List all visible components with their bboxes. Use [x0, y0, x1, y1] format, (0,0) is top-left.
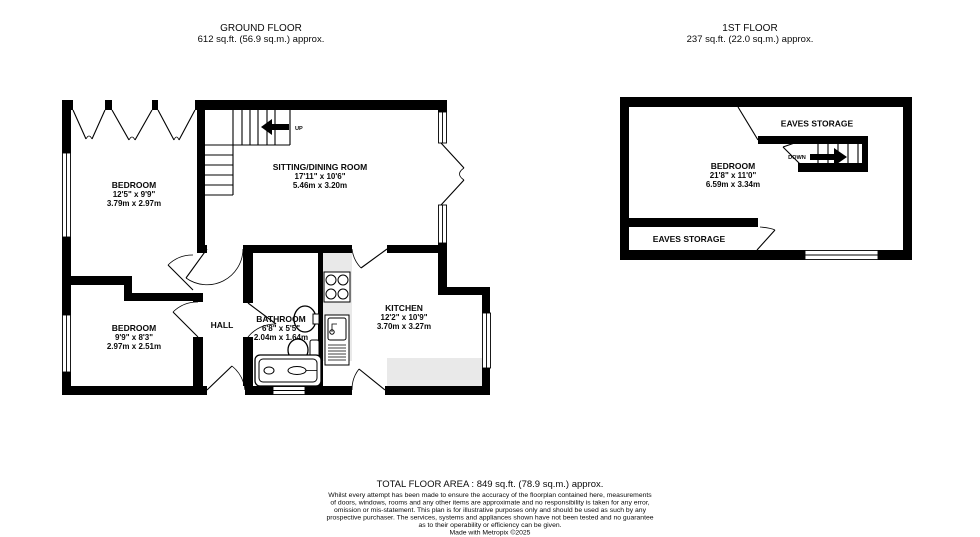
wall	[62, 386, 207, 395]
bedroom1-metric: 3.79m x 2.97m	[107, 199, 161, 208]
window	[483, 313, 491, 368]
window	[63, 153, 71, 237]
bathtub-icon	[255, 355, 321, 386]
wall	[878, 250, 912, 260]
wall	[482, 287, 490, 313]
door	[352, 369, 385, 390]
window	[439, 112, 447, 143]
wall	[105, 100, 112, 110]
door	[186, 249, 243, 285]
hob-icon	[324, 272, 350, 302]
first-floor-area-text: 237 sq.ft. (22.0 sq.m.) approx.	[687, 34, 814, 45]
sitting-name: SITTING/DINING ROOM	[273, 162, 367, 172]
wall	[197, 110, 205, 253]
ground-floor-title-text: GROUND FLOOR	[220, 23, 302, 34]
total-floor-area: TOTAL FLOOR AREA : 849 sq.ft. (78.9 sq.m…	[377, 479, 604, 490]
wall	[387, 245, 447, 253]
wall	[482, 368, 490, 395]
disclaimer-line: Whilst every attempt has been made to en…	[328, 492, 652, 499]
first-floor-plan: 1ST FLOOR 237 sq.ft. (22.0 sq.m.) approx…	[620, 23, 912, 260]
first-floor-title: 1ST FLOOR 237 sq.ft. (22.0 sq.m.) approx…	[687, 23, 814, 45]
wall	[193, 337, 203, 386]
eaves-top-name: EAVES STORAGE	[781, 119, 854, 129]
wall	[152, 100, 158, 110]
first-bedroom-imperial: 21'8" x 11'0"	[710, 171, 757, 180]
floorplan-svg: GROUND FLOOR 612 sq.ft. (56.9 sq.m.) app…	[0, 0, 980, 537]
wall	[124, 293, 194, 301]
kitchen-counter-bottom	[387, 358, 482, 386]
ground-stairs: UP	[203, 110, 303, 195]
wall	[62, 100, 71, 153]
bedroom1-name: BEDROOM	[112, 180, 156, 190]
ground-floor-title: GROUND FLOOR 612 sq.ft. (56.9 sq.m.) app…	[198, 23, 325, 45]
bathroom-imperial: 6'8" x 5'5"	[262, 324, 300, 333]
disclaimer-line: as to their operability or efficiency ca…	[418, 522, 561, 529]
ground-floor-plan: GROUND FLOOR 612 sq.ft. (56.9 sq.m.) app…	[62, 23, 491, 395]
disclaimer-line: prospective purchaser. The services, sys…	[326, 515, 653, 522]
ground-floor-area-text: 612 sq.ft. (56.9 sq.m.) approx.	[198, 34, 325, 45]
wall	[385, 386, 490, 395]
bedroom2-imperial: 9'9" x 8'3"	[115, 333, 153, 342]
wall	[62, 276, 124, 285]
first-windows	[805, 251, 878, 260]
wall	[245, 386, 273, 395]
bedroom2-metric: 2.97m x 2.51m	[107, 342, 161, 351]
ground-room-labels: BEDROOM 12'5" x 9'9" 3.79m x 2.97m SITTI…	[107, 162, 431, 351]
wall	[620, 250, 805, 260]
wall	[758, 136, 868, 144]
window	[439, 205, 447, 243]
eaves-hatch-line	[757, 227, 775, 250]
wall	[903, 97, 912, 260]
wall	[620, 97, 629, 260]
door	[352, 249, 387, 268]
hall-name: HALL	[211, 320, 234, 330]
first-bedroom-metric: 6.59m x 3.34m	[706, 180, 760, 189]
wall	[620, 97, 912, 107]
disclaimer-line: omission or mis-statement. This plan is …	[334, 507, 647, 514]
kitchen-fixtures	[324, 272, 350, 365]
window	[273, 387, 305, 395]
wall	[193, 293, 203, 302]
bathroom-tap-icon	[313, 314, 319, 324]
bedroom1-imperial: 12'5" x 9'9"	[113, 190, 156, 199]
floorplan-page: GROUND FLOOR 612 sq.ft. (56.9 sq.m.) app…	[0, 0, 980, 537]
wall	[243, 253, 253, 303]
kitchen-imperial: 12'2" x 10'9"	[381, 313, 428, 322]
credit-line: Made with Metropix ©2025	[450, 529, 531, 537]
down-label: DOWN	[788, 155, 806, 161]
door	[207, 366, 245, 390]
french-doors	[441, 143, 464, 205]
bathroom-metric: 2.04m x 1.64m	[254, 333, 308, 342]
sitting-imperial: 17'11" x 10'6"	[295, 172, 346, 181]
sitting-metric: 5.46m x 3.20m	[293, 181, 347, 190]
wall	[243, 337, 253, 386]
casement-window	[112, 110, 152, 140]
kitchen-name: KITCHEN	[385, 303, 423, 313]
kitchen-metric: 3.70m x 3.27m	[377, 322, 431, 331]
first-floor-title-text: 1ST FLOOR	[722, 23, 777, 34]
up-label: UP	[295, 126, 303, 132]
wall	[243, 245, 352, 253]
casement-window	[158, 110, 195, 140]
kitchen-sink-icon	[325, 315, 349, 365]
first-bedroom-name: BEDROOM	[711, 161, 755, 171]
door	[168, 255, 193, 290]
wall	[438, 100, 447, 112]
wall	[195, 100, 447, 110]
bedroom2-name: BEDROOM	[112, 323, 156, 333]
window	[63, 315, 71, 372]
footer: TOTAL FLOOR AREA : 849 sq.ft. (78.9 sq.m…	[326, 479, 653, 537]
window	[805, 251, 878, 260]
eaves-bottom-name: EAVES STORAGE	[653, 234, 726, 244]
eaves-hatch-line	[738, 107, 758, 140]
wall	[305, 386, 352, 395]
bathroom-name: BATHROOM	[256, 314, 305, 324]
wall	[798, 163, 868, 172]
door	[173, 302, 198, 337]
casement-window	[73, 110, 105, 139]
disclaimer-line: of doors, windows, rooms and any other i…	[330, 500, 649, 507]
wall	[623, 218, 758, 227]
